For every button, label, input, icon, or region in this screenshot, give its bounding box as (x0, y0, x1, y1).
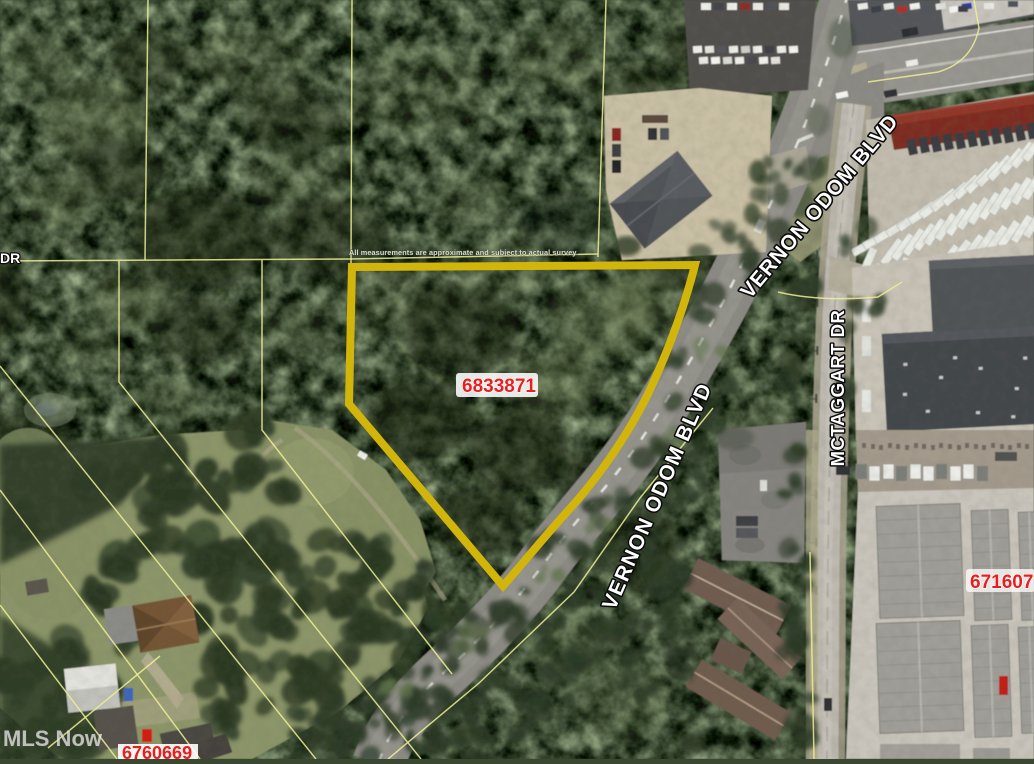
svg-text:All measurements are approxima: All measurements are approximate and sub… (349, 248, 578, 257)
svg-text:6760669: 6760669 (122, 743, 192, 759)
svg-text:671607: 671607 (970, 572, 1033, 593)
svg-text:DR: DR (0, 250, 20, 266)
svg-text:6833871: 6833871 (462, 376, 536, 397)
svg-text:MCTAGGART DR: MCTAGGART DR (827, 310, 848, 467)
svg-text:MLS Now: MLS Now (3, 726, 103, 751)
